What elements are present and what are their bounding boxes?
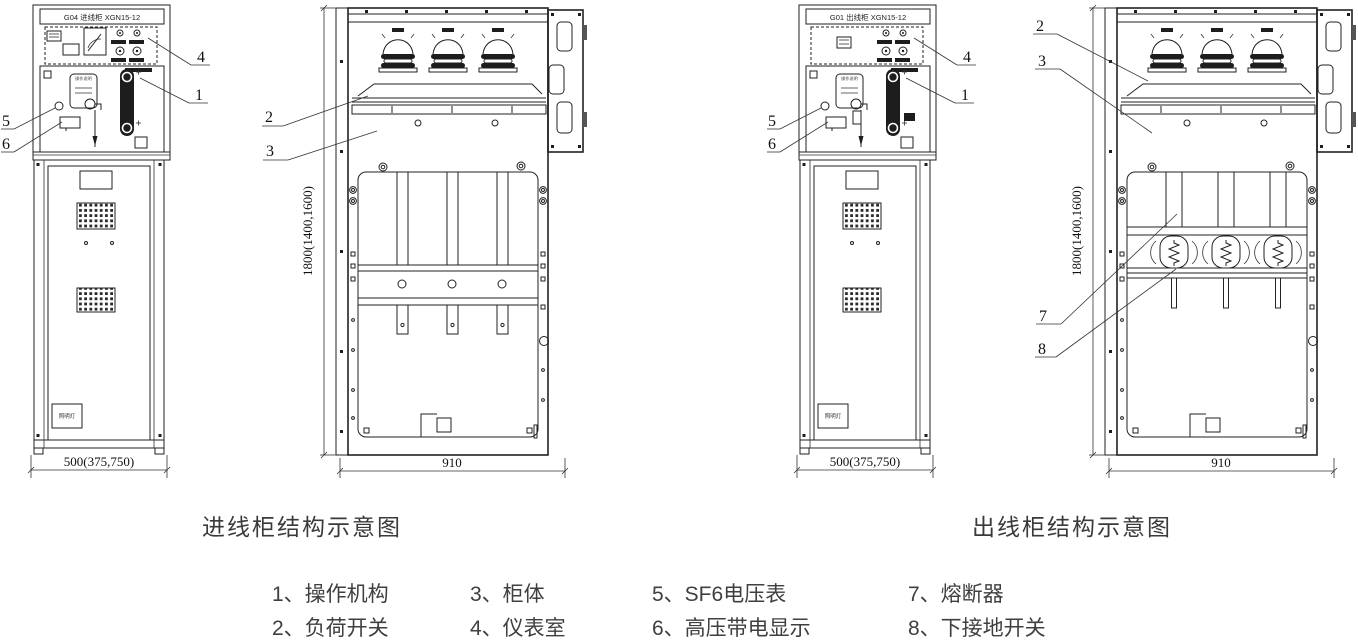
callout-4: 4: [197, 49, 205, 66]
callout-2: 2: [1036, 18, 1044, 35]
width-dimension: 500(375,750): [64, 454, 134, 469]
height-dimension: 1800(1400,1600): [1069, 186, 1084, 276]
instruction-plate-label: 操作说明: [841, 75, 858, 82]
legend-item-4: 4、仪表室: [470, 612, 566, 642]
cabinet-title: G01 出线柜 XGN15-12: [830, 12, 906, 22]
switchgear-structure-diagram: G04 进线柜 XGN15-12 操作说明 照明灯 500(375,750) 4…: [0, 0, 1358, 642]
callout-5: 5: [2, 113, 10, 130]
legend-item-5: 5、SF6电压表: [652, 578, 811, 612]
callout-4: 4: [963, 49, 971, 66]
callout-3: 3: [266, 143, 274, 160]
lamp-label: 照明灯: [825, 412, 842, 420]
instruction-plate-label: 操作说明: [75, 75, 92, 82]
cabinet-title: G04 进线柜 XGN15-12: [64, 12, 140, 22]
incoming-internal-view: 2 3 1800(1400,1600) 910: [262, 5, 587, 478]
legend-item-1: 1、操作机构: [272, 578, 389, 612]
callout-8: 8: [1038, 341, 1046, 358]
depth-dimension: 910: [1211, 455, 1231, 470]
legend-item-2: 2、负荷开关: [272, 612, 389, 642]
callout-7: 7: [1039, 308, 1047, 325]
legend-item-6: 6、高压带电显示: [652, 612, 811, 642]
incoming-caption: 进线柜结构示意图: [202, 508, 402, 542]
lamp-label: 照明灯: [59, 412, 76, 420]
incoming-front-view: G04 进线柜 XGN15-12 操作说明 照明灯 500(375,750) 4…: [1, 5, 210, 478]
callout-6: 6: [2, 136, 10, 153]
height-dimension: 1800(1400,1600): [300, 186, 315, 276]
callout-6: 6: [768, 136, 776, 153]
fuse-right: [1255, 236, 1302, 268]
legend-item-3: 3、柜体: [470, 578, 566, 612]
width-dimension: 500(375,750): [830, 454, 900, 469]
callout-5: 5: [768, 113, 776, 130]
callout-2: 2: [265, 109, 273, 126]
legend-item-7: 7、熔断器: [908, 578, 1046, 612]
depth-dimension: 910: [442, 455, 462, 470]
legend-item-8: 8、下接地开关: [908, 612, 1046, 642]
parts-legend: 1、操作机构 2、负荷开关 3、柜体 4、仪表室 5、SF6电压表 6、高压带电…: [0, 578, 1358, 642]
fuse-middle: [1203, 236, 1250, 268]
callout-1: 1: [961, 87, 969, 104]
outgoing-front-view: G01 出线柜 XGN15-12 操作说明 照明灯 500(375,750) 4…: [767, 5, 976, 478]
outgoing-internal-view: 2 3 7 8 1800(1400,1600) 910: [1033, 5, 1356, 478]
outgoing-caption: 出线柜结构示意图: [972, 508, 1172, 542]
fuse-left: [1151, 236, 1198, 268]
callout-1: 1: [195, 87, 203, 104]
drawings-canvas: G04 进线柜 XGN15-12 操作说明 照明灯 500(375,750) 4…: [0, 0, 1358, 500]
callout-3: 3: [1038, 53, 1046, 70]
